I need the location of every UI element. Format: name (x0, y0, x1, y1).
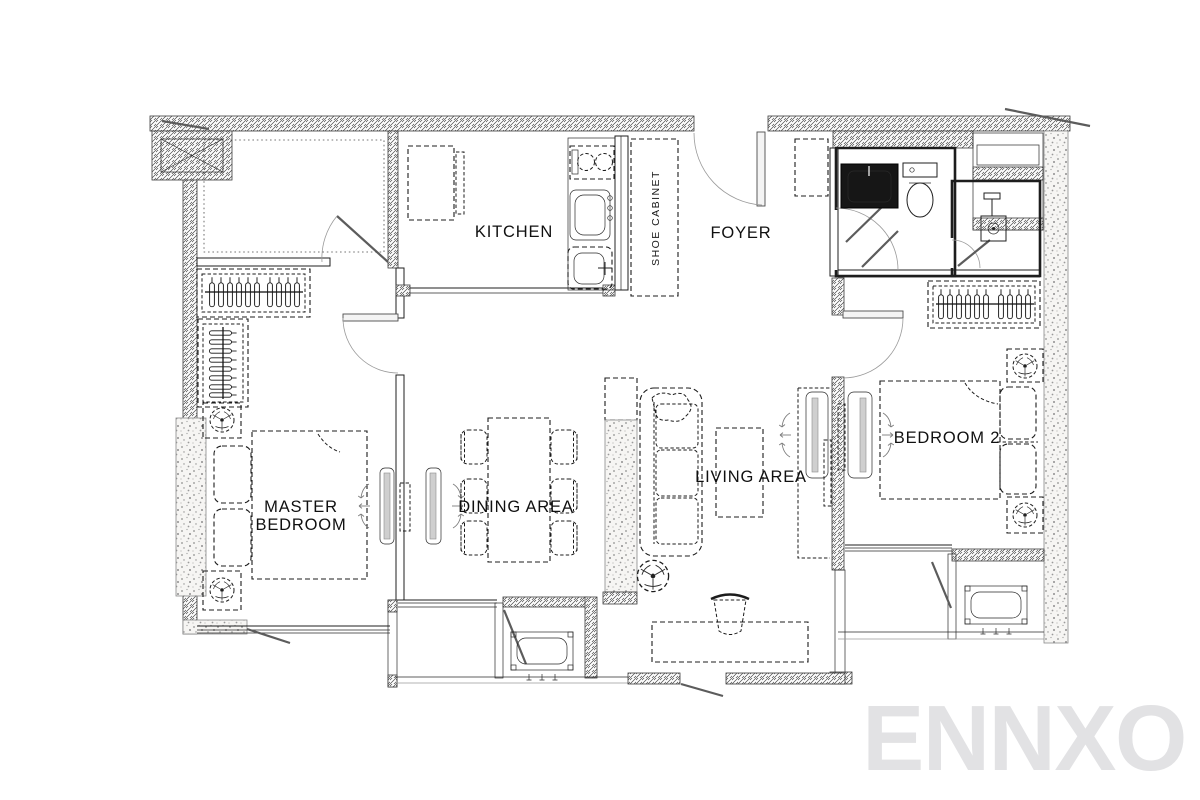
kitchen-sink (570, 190, 612, 240)
living-area: LIVING AREA (637, 388, 831, 662)
column-cabinet (605, 378, 637, 420)
bedroom-2-label: BEDROOM 2 (894, 429, 1000, 447)
master-bedroom-label-line2: BEDROOM (255, 516, 346, 534)
watermark: ENNXO (862, 686, 1186, 790)
wall-tv (400, 483, 410, 531)
wall-tv (824, 440, 831, 506)
bedroom2-door (843, 311, 903, 378)
blanket-fold (965, 383, 998, 404)
vanity-sink (841, 164, 898, 208)
concrete-column-center (605, 420, 637, 592)
air-flow-arrows (358, 484, 370, 528)
stipple-sill (183, 620, 247, 634)
master-bedroom-label-line1: MASTER (264, 498, 338, 516)
air-flow-arrows (779, 413, 791, 457)
ac-condenser-unit (511, 632, 573, 680)
fridge (408, 146, 454, 220)
clothes-hangers-horizontal (210, 277, 300, 306)
blanket-fold (318, 434, 340, 452)
bedroom-2: BEDROOM 2 (838, 281, 1043, 533)
ac-condenser-unit (965, 586, 1027, 634)
toilet (903, 163, 937, 217)
foyer-cabinet (795, 139, 828, 196)
tv-unit-bedroom2 (838, 392, 894, 478)
dining-area: DINING AREA (458, 418, 577, 562)
nightstand-lamp (1007, 497, 1043, 533)
nightstand-lamp (203, 571, 241, 610)
elevator-shaft (152, 131, 232, 180)
nightstand-lamp (1007, 349, 1043, 382)
pillow (1000, 444, 1036, 494)
ceiling-fan (637, 560, 668, 591)
kitchen: KITCHEN (408, 138, 615, 290)
foyer: SHOE CABINET FOYER (631, 139, 828, 296)
floor-plan: KITCHEN SHOE CABINET FOYER (0, 0, 1200, 800)
pillow (214, 446, 251, 503)
master-bedroom: MASTER BEDROOM (197, 269, 464, 610)
prep-sink (568, 247, 612, 289)
tv-unit-dining (400, 468, 464, 544)
interior-walls (197, 136, 1040, 687)
desk-chair (714, 600, 746, 635)
nightstand-lamp (203, 403, 241, 438)
bedroom2-wardrobe (928, 281, 1040, 328)
kitchen-label: KITCHEN (475, 223, 553, 241)
concrete-column-right (1044, 131, 1068, 643)
sofa (640, 388, 702, 556)
entry-door (694, 132, 765, 206)
floor-plan-drawing: KITCHEN SHOE CABINET FOYER (0, 0, 1200, 800)
stove-cooktop (570, 146, 614, 179)
master-door (343, 314, 398, 373)
living-area-label: LIVING AREA (695, 468, 807, 486)
dining-chairs (461, 430, 577, 555)
shoe-cabinet-label: SHOE CABINET (650, 170, 662, 266)
pillow (1000, 387, 1036, 439)
desk (652, 595, 808, 663)
air-flow-arrows (882, 413, 894, 457)
shower-head (981, 193, 1006, 241)
pillow (214, 509, 251, 566)
dining-table (488, 418, 550, 562)
bathroom-1 (836, 148, 955, 276)
storage-door (322, 216, 388, 262)
foyer-label: FOYER (711, 224, 772, 242)
concrete-column-left (176, 418, 206, 596)
plant (652, 393, 691, 421)
dining-area-label: DINING AREA (458, 498, 573, 516)
tv-unit-master (358, 468, 394, 544)
master-closet (197, 269, 310, 407)
